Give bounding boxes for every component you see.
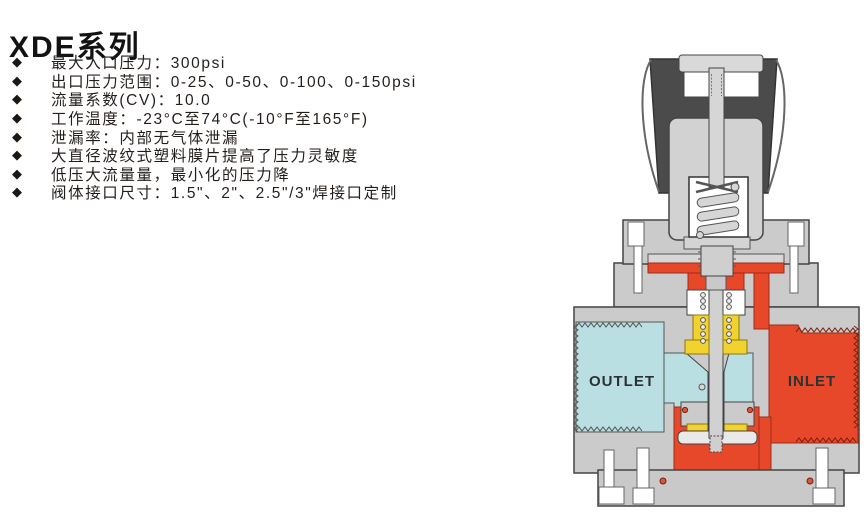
seat-oring-right: [747, 407, 752, 412]
feature-text: 阀体接口尺寸：1.5"、2"、2.5"/3"焊接口定制: [51, 181, 398, 203]
bolt-head: [633, 488, 654, 504]
diamond-bullet-icon: ◆: [9, 184, 51, 200]
base-oring-right: [807, 478, 813, 484]
seat-oring-left: [682, 407, 687, 412]
feature-item: ◆泄漏率：内部无气体泄漏: [9, 127, 417, 146]
feature-item: ◆最大入口压力：300psi: [9, 53, 417, 72]
diamond-bullet-icon: ◆: [9, 91, 51, 107]
feature-list: ◆最大入口压力：300psi ◆出口压力范围：0-25、0-50、0-100、0…: [9, 53, 417, 202]
diamond-bullet-icon: ◆: [9, 54, 51, 70]
diamond-bullet-icon: ◆: [9, 166, 51, 182]
feature-item: ◆流量系数(CV)：10.0: [9, 90, 417, 109]
feature-item: ◆大直径波纹式塑料膜片提高了压力灵敏度: [9, 146, 417, 165]
cartridge-boss: [706, 275, 726, 290]
adjusting-nut: [701, 246, 733, 276]
base-oring-left: [660, 478, 666, 484]
inlet-label: INLET: [788, 373, 836, 390]
outlet-label: OUTLET: [589, 373, 655, 390]
mini-spring-right: [727, 293, 732, 344]
feature-item: ◆低压大流量量，最小化的压力降: [9, 165, 417, 184]
diamond-bullet-icon: ◆: [9, 73, 51, 89]
diamond-bullet-icon: ◆: [9, 110, 51, 126]
bolt-shaft: [604, 450, 614, 488]
bolt-head: [599, 487, 624, 504]
feature-item: ◆阀体接口尺寸：1.5"、2"、2.5"/3"焊接口定制: [9, 183, 417, 202]
main-stem: [709, 273, 723, 438]
diamond-bullet-icon: ◆: [9, 147, 51, 163]
packing-box-right: [723, 290, 745, 315]
bolt-head: [813, 488, 835, 504]
valve-cross-section-diagram: OUTLET INLET: [566, 40, 866, 520]
bolt-shaft: [637, 448, 649, 488]
sensing-passage: [754, 269, 769, 329]
packing-box-left: [687, 290, 709, 315]
valve-svg: OUTLET INLET: [566, 40, 866, 520]
feature-item: ◆出口压力范围：0-25、0-50、0-100、0-150psi: [9, 72, 417, 91]
diamond-bullet-icon: ◆: [9, 129, 51, 145]
bolt-shaft: [816, 448, 828, 488]
feature-item: ◆工作温度：-23°C至74°C(-10°F至165°F): [9, 109, 417, 128]
seat-seal-right: [722, 424, 747, 431]
mini-spring-left: [701, 293, 706, 344]
stem-threaded-tip: [710, 436, 722, 452]
